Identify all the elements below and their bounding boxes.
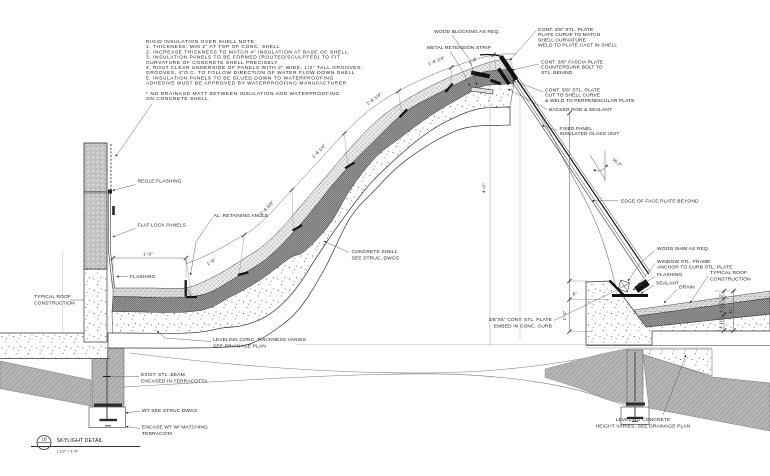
- svg-text:EDGE OF FACE PLATE BEYOND: EDGE OF FACE PLATE BEYOND: [621, 199, 699, 205]
- svg-text:2": 2": [719, 293, 724, 298]
- svg-text:DRAIN: DRAIN: [679, 285, 695, 291]
- svg-text:1 1/2" = 1'-0": 1 1/2" = 1'-0": [57, 450, 79, 454]
- svg-text:SKYLIGHT DETAIL: SKYLIGHT DETAIL: [57, 438, 104, 444]
- svg-text:4'-0": 4'-0": [482, 183, 487, 193]
- svg-text:SEE DRAINAGE PLAN: SEE DRAINAGE PLAN: [213, 344, 266, 350]
- svg-text:PLATE CURVE TO MATCH: PLATE CURVE TO MATCH: [538, 32, 601, 38]
- svg-text:6": 6": [573, 292, 578, 297]
- svg-text:CONCRETE SHELL: CONCRETE SHELL: [352, 249, 398, 255]
- svg-text:CONT. 3/8" FASCIA PLATE: CONT. 3/8" FASCIA PLATE: [541, 60, 604, 66]
- svg-text:* NO DRAINAGE MATT BETWEEN INS: * NO DRAINAGE MATT BETWEEN INSULATION AN…: [146, 91, 340, 97]
- svg-text:5. INSULATION PANELS TO BE GLU: 5. INSULATION PANELS TO BE GLUED DOWN TO…: [146, 75, 334, 81]
- svg-text:STL. BEHIND: STL. BEHIND: [541, 70, 573, 76]
- svg-text:4 1/2": 4 1/2": [719, 316, 724, 329]
- svg-text:CONSTRUCTION: CONSTRUCTION: [710, 277, 751, 283]
- svg-text:1. THICKNESS: MIN 2" AT TOP OF: 1. THICKNESS: MIN 2" AT TOP OF CONC. SHE…: [146, 44, 280, 50]
- svg-text:SEE STRUC. DWGS: SEE STRUC. DWGS: [352, 256, 400, 262]
- svg-text:CUT TO SHELL CURVE: CUT TO SHELL CURVE: [545, 93, 601, 99]
- svg-text:FLAT LOCK PANELS: FLAT LOCK PANELS: [138, 223, 187, 229]
- svg-text:HEIGHT VARIES, SEE DRAINAGE PL: HEIGHT VARIES, SEE DRAINAGE PLAN: [596, 424, 691, 430]
- svg-text:EMBED IN CONC. CURB: EMBED IN CONC. CURB: [494, 324, 552, 330]
- svg-text:ADHESIVE MUST BE APPROVED BY W: ADHESIVE MUST BE APPROVED BY WATERPROOFI…: [146, 81, 347, 87]
- svg-text:WOOD BLOCKING AS REQ.: WOOD BLOCKING AS REQ.: [434, 29, 500, 35]
- svg-text:REGLE FLASHING: REGLE FLASHING: [138, 179, 182, 185]
- svg-text:CURVATURE OF CONCRETE SHELL PR: CURVATURE OF CONCRETE SHELL PRECISELY: [146, 60, 278, 66]
- svg-text:11": 11": [728, 307, 733, 314]
- svg-text:TYPICAL ROOF: TYPICAL ROOF: [34, 294, 71, 300]
- svg-text:2. INCREASE THICKNESS TO MATCH: 2. INCREASE THICKNESS TO MATCH 4" INSULA…: [146, 49, 350, 55]
- svg-text:TYPICAL ROOF: TYPICAL ROOF: [710, 270, 747, 276]
- svg-text:18: 18: [41, 437, 47, 442]
- svg-text:LEVELING CONCRETE: LEVELING CONCRETE: [616, 417, 671, 423]
- svg-text:TERRACOTA: TERRACOTA: [142, 431, 173, 437]
- svg-text:FIXED PANEL: FIXED PANEL: [560, 126, 593, 132]
- svg-text:4 1/2": 4 1/2": [719, 300, 724, 313]
- svg-text:COUNTERSUNK BOLT TO: COUNTERSUNK BOLT TO: [541, 65, 603, 71]
- svg-text:RIGID INSULATION OVER SHELL NO: RIGID INSULATION OVER SHELL NOTE:: [146, 39, 256, 45]
- svg-text:CONSTRUCTION: CONSTRUCTION: [34, 301, 75, 307]
- svg-text:CONT. 3/8" STL. PLATE: CONT. 3/8" STL. PLATE: [538, 27, 594, 33]
- svg-text:1'-6": 1'-6": [143, 252, 153, 257]
- svg-text:GROOVES, 4"O.C. TO FOLLOW DIRE: GROOVES, 4"O.C. TO FOLLOW DIRECTION OF W…: [146, 70, 355, 76]
- svg-text:EXIST. STL. BEAM: EXIST. STL. BEAM: [141, 372, 185, 378]
- svg-text:ENCASE WT W/ MATCHING: ENCASE WT W/ MATCHING: [142, 425, 208, 431]
- svg-text:BACKER ROD & SEALANT: BACKER ROD & SEALANT: [549, 107, 612, 113]
- svg-text:WELD TO PLATE CAST IN SHELL: WELD TO PLATE CAST IN SHELL: [538, 43, 617, 49]
- svg-text:3. INSULATION PANELS TO BE FOR: 3. INSULATION PANELS TO BE FORMED (ROUTE…: [146, 55, 340, 61]
- svg-text:ENCASED IN TERRACOTTA: ENCASED IN TERRACOTTA: [141, 379, 208, 385]
- svg-text:LEVELING CONC. THICKNESS VARIE: LEVELING CONC. THICKNESS VARIES: [213, 337, 307, 343]
- svg-text:CONT. 3/8" STL. PLATE: CONT. 3/8" STL. PLATE: [545, 88, 601, 94]
- svg-text:ON CONCRETE SHELL.: ON CONCRETE SHELL.: [146, 96, 210, 102]
- svg-text:WINDOW STL. FRAME: WINDOW STL. FRAME: [657, 259, 711, 265]
- svg-text:SHELL CURVATURE: SHELL CURVATURE: [538, 37, 587, 43]
- svg-text:FLASHING: FLASHING: [657, 272, 682, 278]
- svg-text:WT SEE STRUC DWGS: WT SEE STRUC DWGS: [142, 408, 198, 414]
- svg-text:4. ROUT CLEAR UNDERSIDE OF PAN: 4. ROUT CLEAR UNDERSIDE OF PANELS WITH 2…: [146, 65, 363, 71]
- svg-text:SEALANT: SEALANT: [656, 281, 679, 287]
- svg-text:WOOD SHIM AS REQ.: WOOD SHIM AS REQ.: [657, 246, 709, 252]
- svg-text:AL. RETAINING ANGLE: AL. RETAINING ANGLE: [214, 213, 270, 219]
- svg-text:METAL RETENSION STRIP: METAL RETENSION STRIP: [427, 45, 491, 51]
- svg-text:INSULATED GLASS UNIT: INSULATED GLASS UNIT: [560, 131, 620, 137]
- svg-text:& WELD TO PERPENDICULAR PLATE: & WELD TO PERPENDICULAR PLATE: [545, 98, 635, 104]
- svg-text:FLASHING: FLASHING: [130, 274, 155, 280]
- svg-text:ANCHOR TO CURB STL. PLATE: ANCHOR TO CURB STL. PLATE: [657, 265, 733, 271]
- svg-text:3/8"X5" CONT. STL. PLATE: 3/8"X5" CONT. STL. PLATE: [489, 317, 553, 323]
